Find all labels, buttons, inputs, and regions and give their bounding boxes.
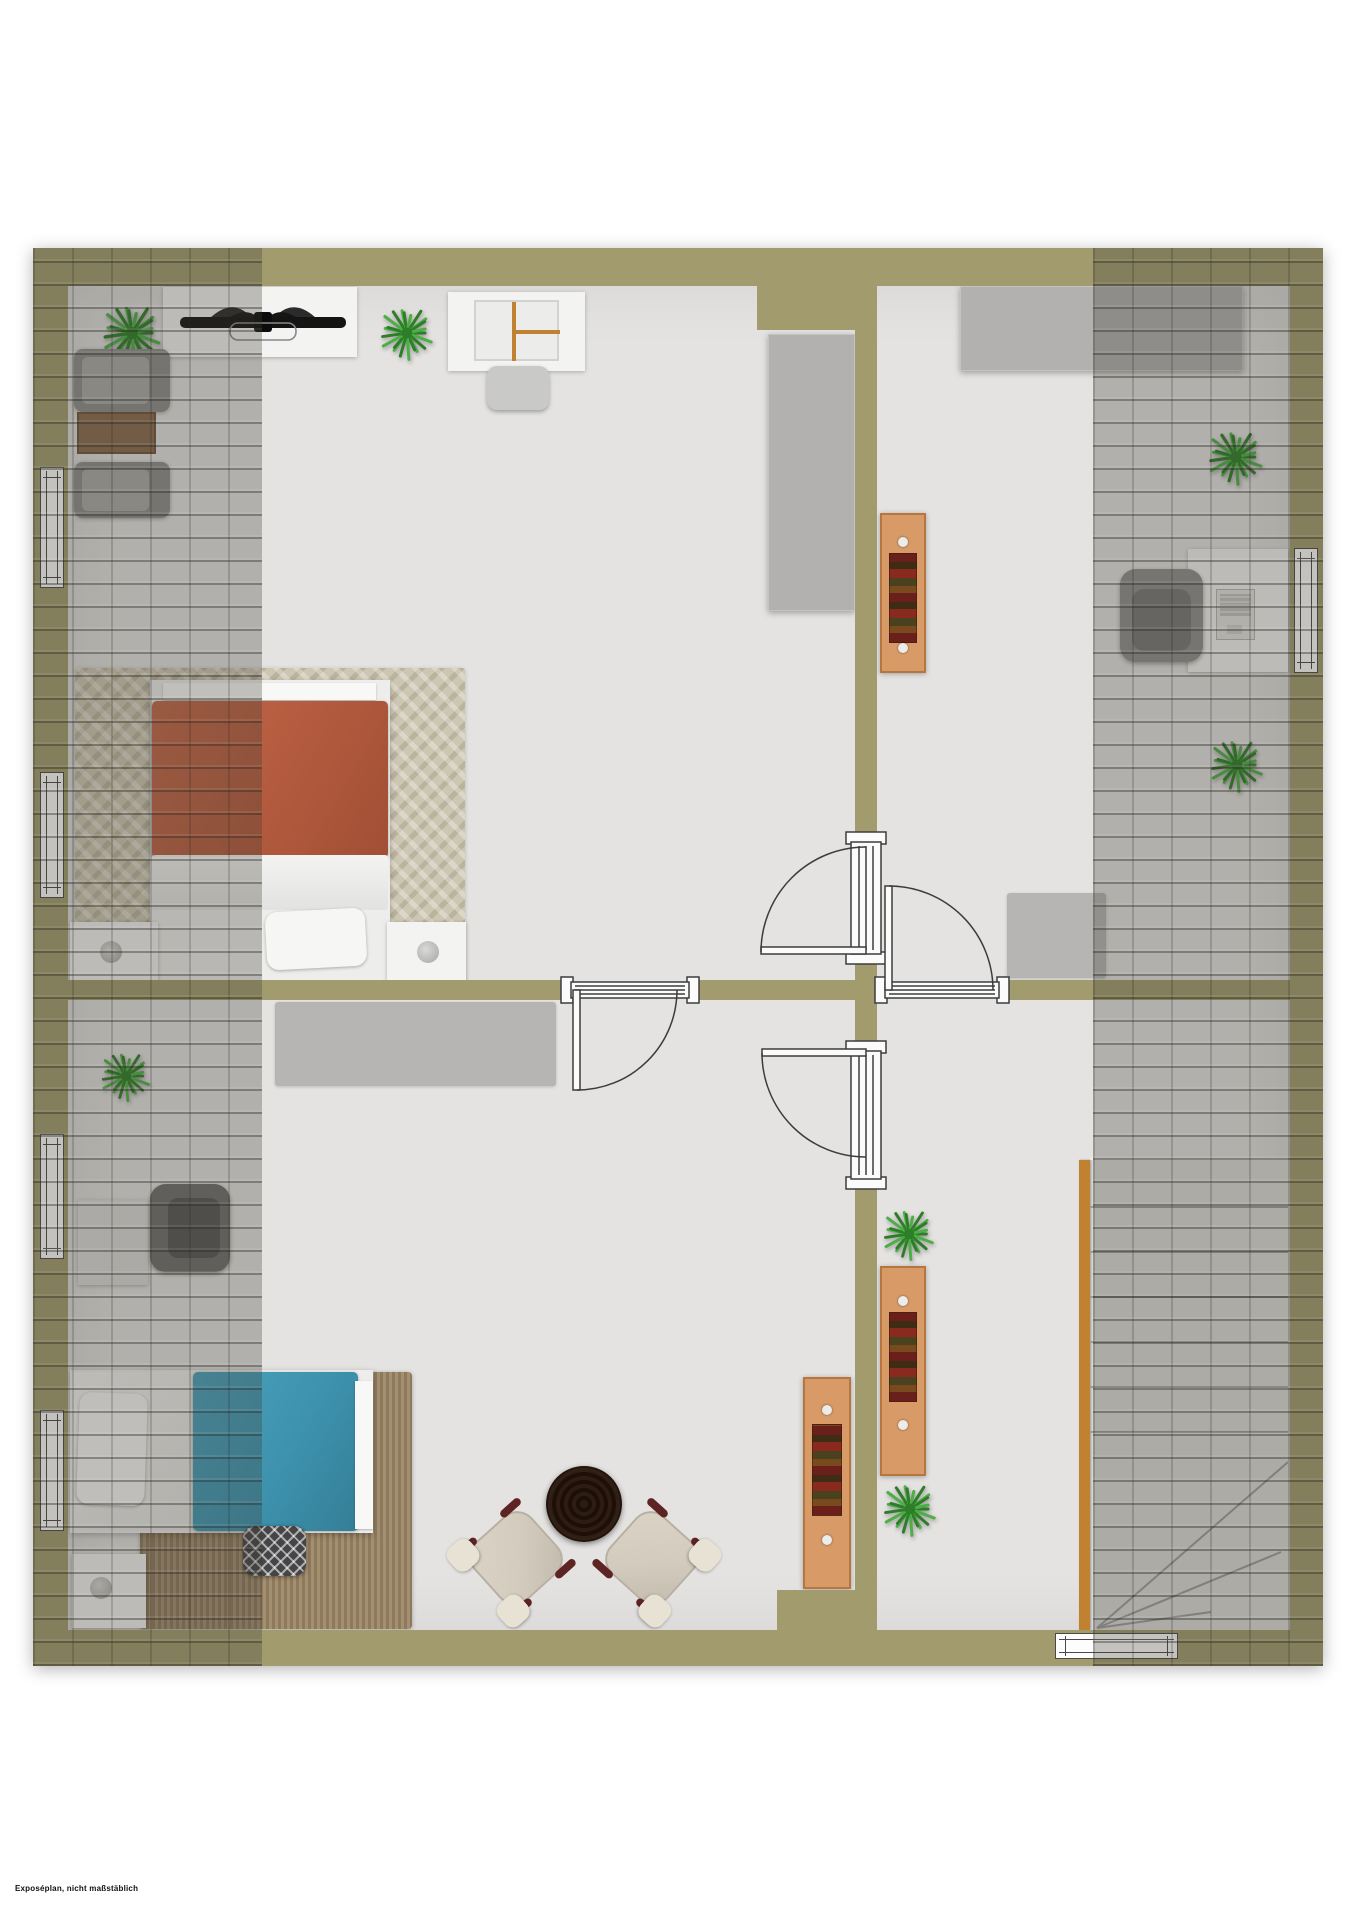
window bbox=[40, 1134, 64, 1259]
window bbox=[1055, 1633, 1178, 1659]
window bbox=[40, 1410, 64, 1531]
floor-plan-canvas: Exposéplan, nicht maßstäblich bbox=[0, 0, 1357, 1920]
window bbox=[1294, 548, 1318, 673]
window bbox=[40, 467, 64, 588]
disclaimer-text: Exposéplan, nicht maßstäblich bbox=[15, 1884, 138, 1893]
window bbox=[40, 772, 64, 898]
door-symbols bbox=[0, 0, 1357, 1920]
